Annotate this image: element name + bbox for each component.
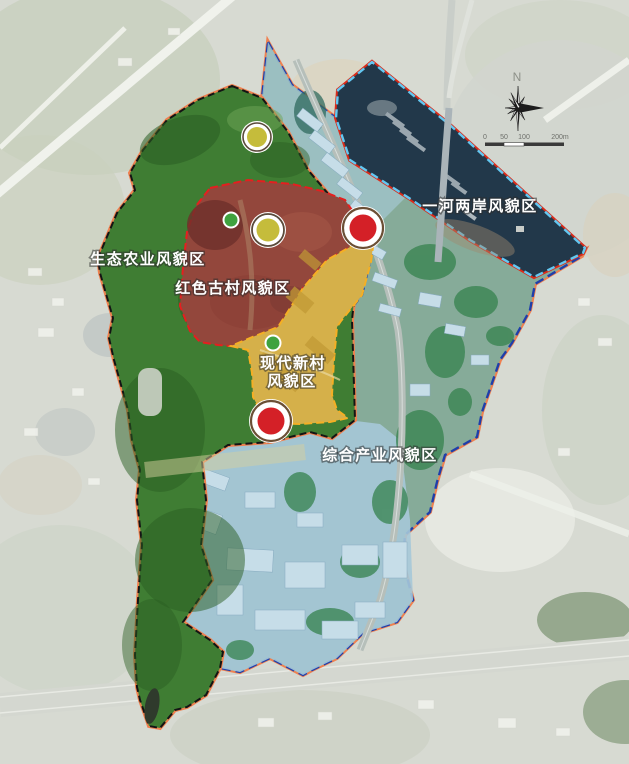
- scale-tick-200: 200m: [551, 134, 569, 141]
- label-modern-new-village-line2: 风貌区: [267, 372, 317, 390]
- red-node-marker: [341, 206, 385, 250]
- scale-tick-100: 100: [518, 134, 530, 141]
- red-node-marker: [249, 399, 293, 443]
- planning-map: 生态农业风貌区 红色古村风貌区 现代新村 风貌区 综合产业风貌区 一河两岸风貌区…: [0, 0, 629, 764]
- green-dot-marker: [223, 212, 240, 229]
- green-dot-marker: [265, 335, 282, 352]
- pond-faded: [35, 408, 95, 456]
- yellow-node-marker: [250, 212, 286, 248]
- north-label: N: [513, 70, 522, 84]
- excluded-notch: [138, 368, 162, 416]
- scale-segment: [504, 143, 524, 147]
- label-comprehensive-industry: 综合产业风貌区: [322, 446, 438, 464]
- scale-segment: [485, 143, 504, 147]
- label-river-two-banks: 一河两岸风貌区: [422, 197, 538, 215]
- scale-tick-50: 50: [500, 134, 508, 141]
- scale-tick-0: 0: [483, 134, 487, 141]
- map-canvas: 生态农业风貌区 红色古村风貌区 现代新村 风貌区 综合产业风貌区 一河两岸风貌区…: [0, 0, 629, 764]
- scale-segment: [524, 143, 564, 147]
- label-eco-agriculture: 生态农业风貌区: [90, 250, 206, 268]
- bare-soil-patch: [0, 455, 82, 515]
- label-red-ancient-village: 红色古村风貌区: [175, 279, 291, 297]
- label-modern-new-village-line1: 现代新村: [260, 354, 326, 372]
- yellow-node-marker: [241, 121, 273, 153]
